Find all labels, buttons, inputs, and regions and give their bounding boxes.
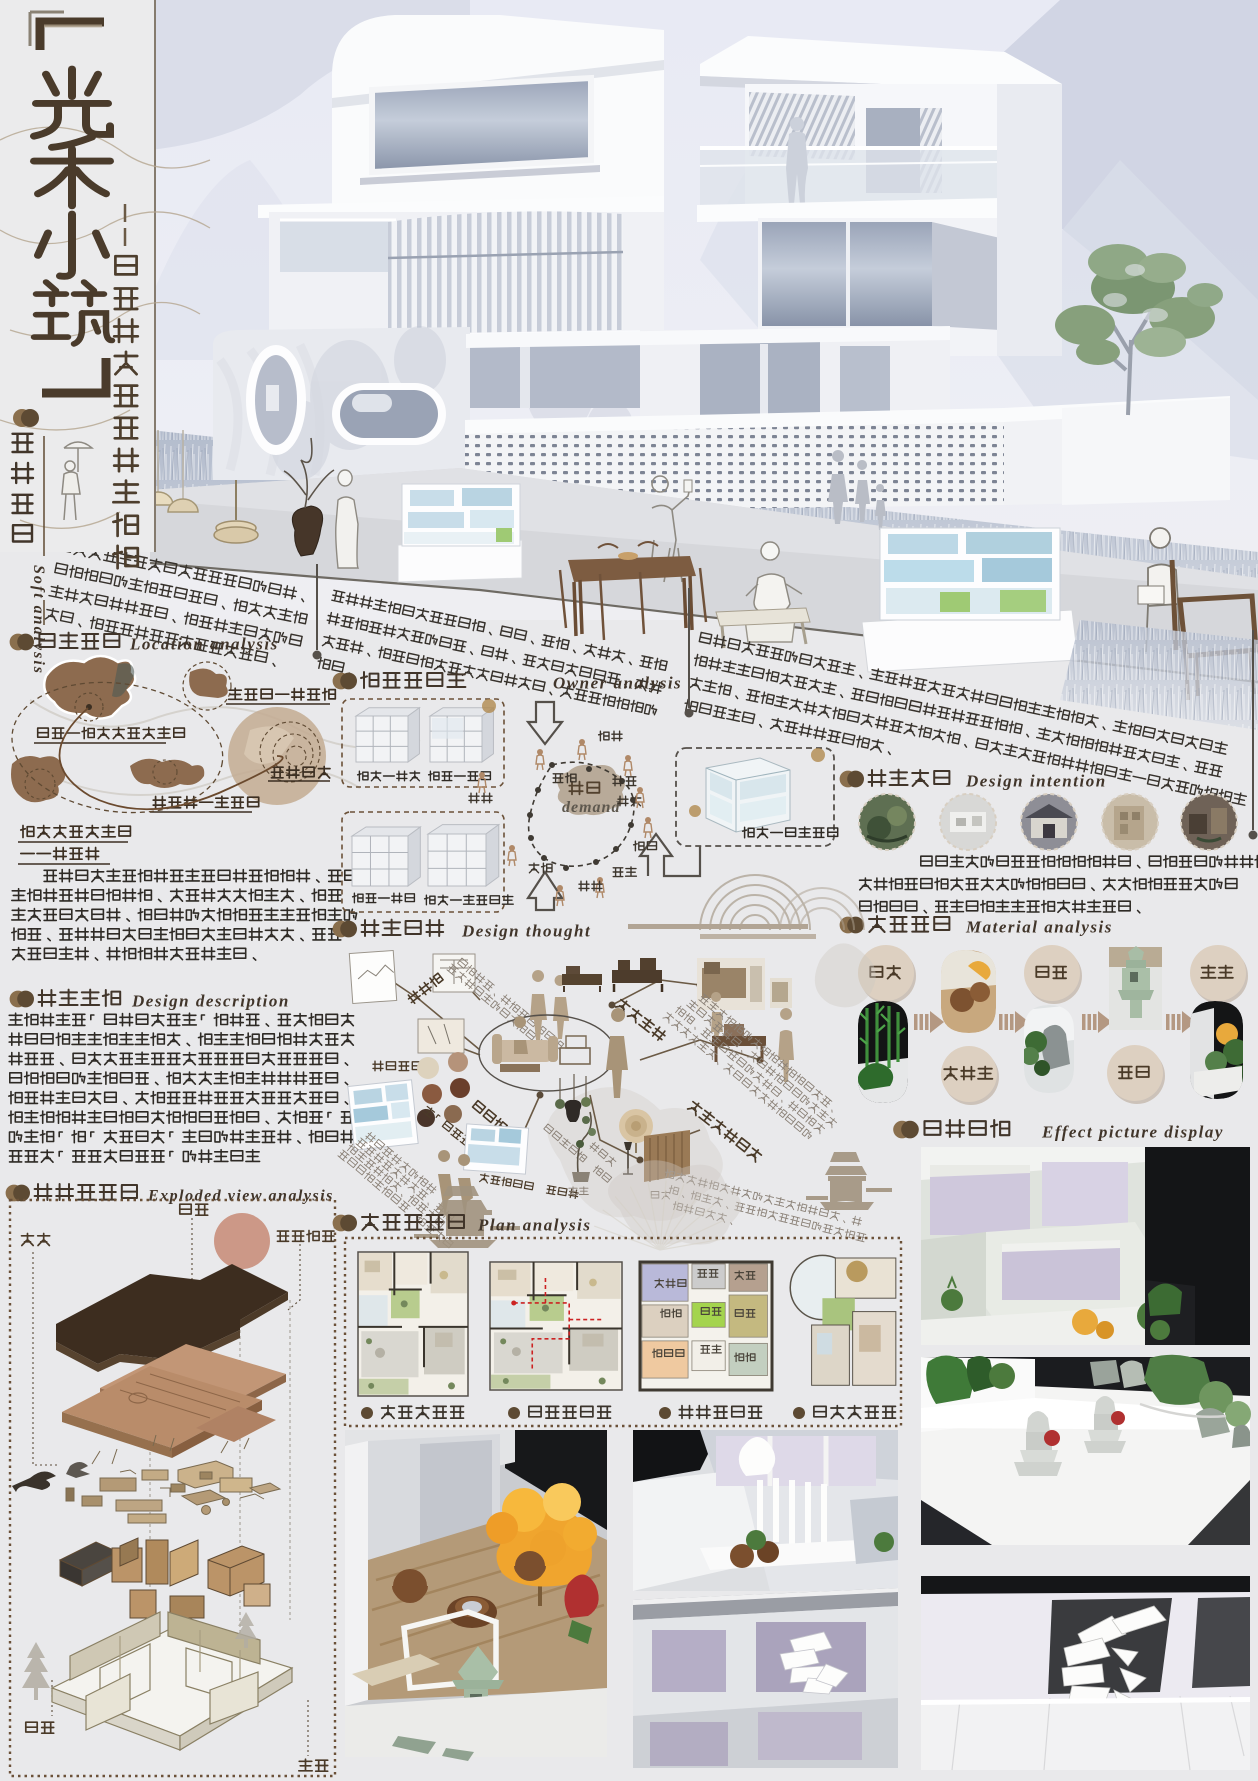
svg-text:demand: demand	[562, 799, 620, 816]
svg-text:Owner analysis: Owner analysis	[553, 673, 682, 692]
svg-text:Soft analysis: Soft analysis	[30, 565, 47, 675]
svg-text:Design description: Design description	[131, 991, 290, 1010]
svg-text:Design intention: Design intention	[965, 771, 1107, 790]
svg-text:Exploded view analysis: Exploded view analysis	[147, 1187, 334, 1204]
svg-text:Location analysis: Location analysis	[129, 634, 279, 653]
svg-text:Effect picture display: Effect picture display	[1041, 1122, 1224, 1141]
svg-text:Design thought: Design thought	[461, 921, 591, 940]
svg-text:Plan analysis: Plan analysis	[477, 1215, 592, 1234]
svg-text:Material analysis: Material analysis	[965, 917, 1113, 936]
